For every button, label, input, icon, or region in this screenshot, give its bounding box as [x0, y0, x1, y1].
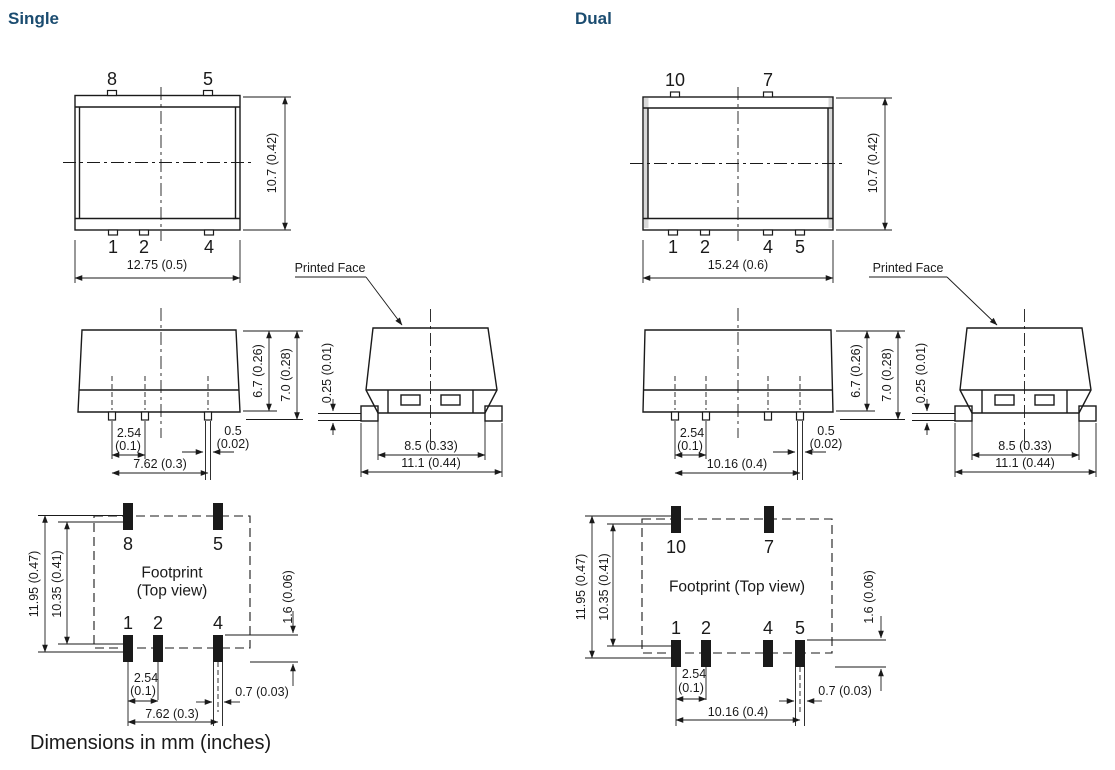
- dual-footprint-title: Footprint (Top view): [669, 579, 805, 595]
- single-sideview-overall-height-dim: 7.0 (0.28): [280, 348, 293, 402]
- dual-topview-pin-7-label: 7: [763, 71, 773, 89]
- single-footprint-pad-2-label: 2: [153, 614, 163, 632]
- single-footprint-span-dim: 7.62 (0.3): [145, 708, 199, 721]
- dual-footprint-pad-1-label: 1: [671, 619, 681, 637]
- single-sideview-pin-width-dim: 0.5: [224, 425, 241, 438]
- dual-footprint-pad-2-label: 2: [701, 619, 711, 637]
- dual-topview-pin-10-label: 10: [665, 71, 685, 89]
- single-sideview-pin-width-inch-dim: (0.02): [217, 438, 250, 451]
- single-footprint-title-line2: (Top view): [137, 583, 208, 599]
- single-footprint-pad-5-label: 5: [213, 535, 223, 553]
- dual-footprint-pad-width-dim: 0.7 (0.03): [818, 685, 872, 698]
- dual-footprint-pad-5-label: 5: [795, 619, 805, 637]
- dual-topview-pin-2-label: 2: [700, 238, 710, 256]
- single-footprint-pitch-inch-dim: (0.1): [130, 685, 156, 698]
- dual-topview-height-dim: 10.7 (0.42): [867, 133, 880, 193]
- single-footprint-inner-height-dim: 10.35 (0.41): [51, 550, 64, 617]
- dual-sideview-case-height-dim: 6.7 (0.26): [850, 344, 863, 398]
- single-footprint-pitch-dim: 2.54: [134, 672, 158, 685]
- single-footprint-pad-1-label: 1: [123, 614, 133, 632]
- single-footprint-title-line1: Footprint: [141, 565, 202, 581]
- dual-footprint-pad-10-label: 10: [666, 538, 686, 556]
- single-topview-width-dim: 12.75 (0.5): [127, 259, 187, 272]
- single-footprint-outer-height-dim: 11.95 (0.47): [28, 551, 41, 617]
- single-footprint-pad-width-dim: 0.7 (0.03): [235, 686, 289, 699]
- dual-endview-standoff-dim: 0.25 (0.01): [915, 343, 928, 403]
- single-footprint-pad-8-label: 8: [123, 535, 133, 553]
- dual-footprint-pitch-dim: 2.54: [682, 668, 706, 681]
- dual-sideview-overall-height-dim: 7.0 (0.28): [881, 348, 894, 402]
- single-topview-pin-8-label: 8: [107, 70, 117, 88]
- single-sideview-pitch-inch-dim: (0.1): [115, 440, 141, 453]
- dual-footprint-pad-4-label: 4: [763, 619, 773, 637]
- dual-side-view-drawing: [643, 308, 905, 480]
- dual-footprint-span-dim: 10.16 (0.4): [708, 706, 768, 719]
- dual-topview-pin-5-label: 5: [795, 238, 805, 256]
- single-sideview-case-height-dim: 6.7 (0.26): [252, 344, 265, 398]
- single-sideview-pitch-dim: 2.54: [117, 427, 141, 440]
- dual-topview-width-dim: 15.24 (0.6): [708, 259, 768, 272]
- dual-endview-overall-width-dim: 11.1 (0.44): [995, 457, 1055, 470]
- dual-sideview-pitch-dim: 2.54: [680, 427, 704, 440]
- single-endview-overall-width-dim: 11.1 (0.44): [401, 457, 461, 470]
- single-endview-body-width-dim: 8.5 (0.33): [404, 440, 458, 453]
- single-endview-printed-face-label: Printed Face: [295, 262, 366, 275]
- package-dimensions-page: Single Dual 8 5 1 2 4 12.75 (0.5) 10.7 (…: [0, 0, 1115, 770]
- dual-footprint-pad-length-dim: 1.6 (0.06): [863, 570, 876, 624]
- dual-end-view-drawing: [869, 277, 1096, 477]
- dual-sideview-pin-width-dim: 0.5: [817, 425, 834, 438]
- single-topview-height-dim: 10.7 (0.42): [266, 133, 279, 193]
- single-topview-pin-2-label: 2: [139, 238, 149, 256]
- dual-topview-pin-4-label: 4: [763, 238, 773, 256]
- dual-endview-body-width-dim: 8.5 (0.33): [998, 440, 1052, 453]
- dual-sideview-pin-width-inch-dim: (0.02): [810, 438, 843, 451]
- single-top-view-drawing: [63, 87, 291, 283]
- single-topview-pin-5-label: 5: [203, 70, 213, 88]
- dual-footprint-pad-7-label: 7: [764, 538, 774, 556]
- dual-sideview-pitch-inch-dim: (0.1): [677, 440, 703, 453]
- single-footprint-pad-length-dim: 1.6 (0.06): [282, 570, 295, 624]
- units-note: Dimensions in mm (inches): [30, 733, 271, 753]
- single-endview-standoff-dim: 0.25 (0.01): [321, 343, 334, 403]
- single-footprint-pad-4-label: 4: [213, 614, 223, 632]
- single-topview-pin-4-label: 4: [204, 238, 214, 256]
- dual-sideview-span-dim: 10.16 (0.4): [707, 458, 767, 471]
- single-section-title: Single: [8, 10, 59, 27]
- single-side-view-drawing: [78, 308, 303, 480]
- dual-topview-pin-1-label: 1: [668, 238, 678, 256]
- dual-footprint-pitch-inch-dim: (0.1): [678, 682, 704, 695]
- dual-endview-printed-face-label: Printed Face: [873, 262, 944, 275]
- single-sideview-span-dim: 7.62 (0.3): [133, 458, 187, 471]
- dual-footprint-outer-height-dim: 11.95 (0.47): [575, 554, 588, 620]
- single-topview-pin-1-label: 1: [108, 238, 118, 256]
- diagram-linework: [0, 0, 1115, 770]
- dual-footprint-inner-height-dim: 10.35 (0.41): [598, 553, 611, 620]
- dual-section-title: Dual: [575, 10, 612, 27]
